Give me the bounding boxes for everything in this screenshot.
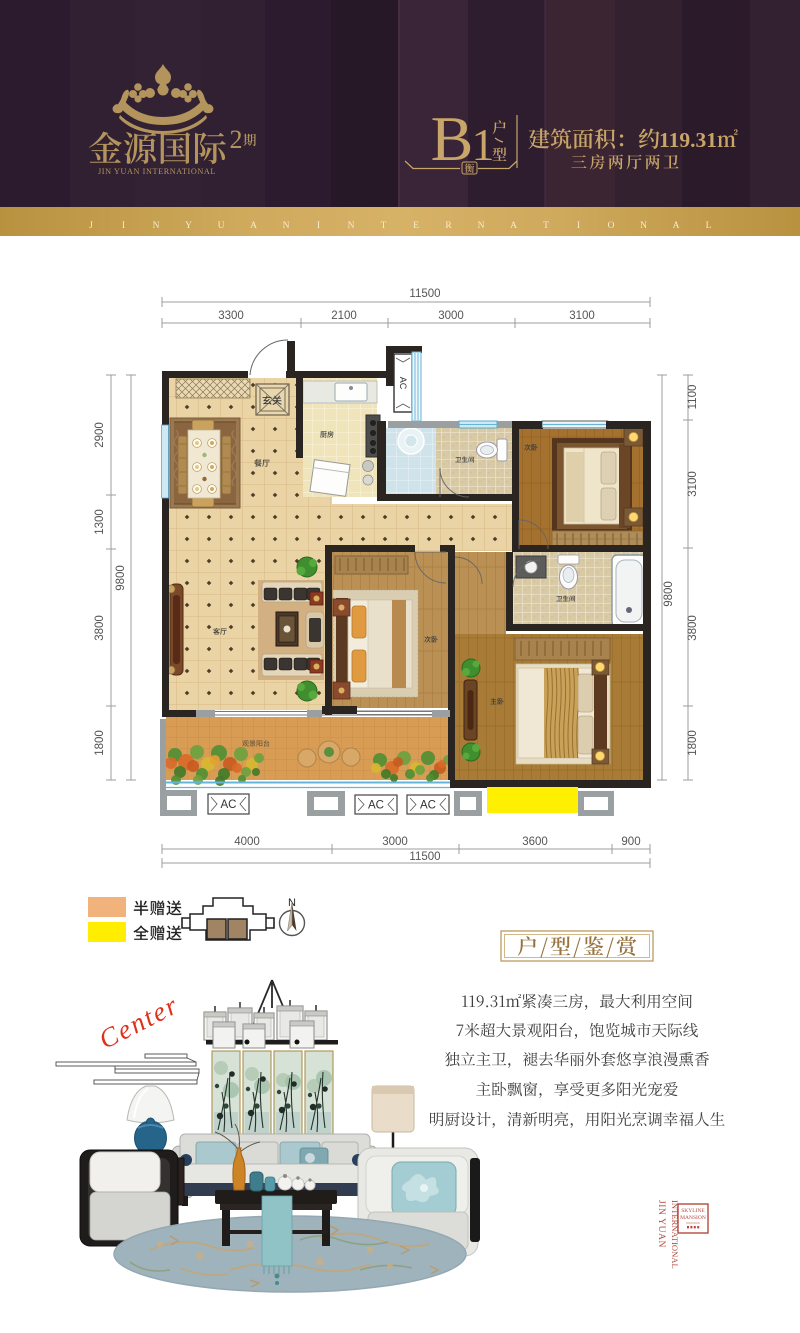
svg-text:T: T <box>381 221 387 231</box>
svg-text:3600: 3600 <box>522 836 548 848</box>
svg-text:3300: 3300 <box>218 310 244 322</box>
svg-text:1100: 1100 <box>687 385 699 410</box>
svg-text:4000: 4000 <box>234 836 260 848</box>
svg-text:9800: 9800 <box>663 581 675 607</box>
svg-text:I: I <box>577 221 580 231</box>
svg-text:AC: AC <box>221 799 237 811</box>
svg-text:119.31: 119.31 <box>659 128 717 152</box>
svg-text:Center: Center <box>94 989 184 1055</box>
svg-text:I: I <box>317 221 320 231</box>
svg-text:N: N <box>283 221 290 231</box>
svg-text:N: N <box>153 221 160 231</box>
svg-text:O: O <box>608 221 615 231</box>
svg-text:SKYLINE: SKYLINE <box>681 1208 705 1214</box>
svg-text:R: R <box>445 221 452 231</box>
svg-text:AC: AC <box>398 377 408 390</box>
svg-text:3100: 3100 <box>569 310 595 322</box>
svg-text:MANSION: MANSION <box>680 1215 706 1221</box>
svg-text:AC: AC <box>420 800 436 812</box>
svg-text:U: U <box>218 221 225 231</box>
svg-text:3000: 3000 <box>438 310 464 322</box>
svg-text:9800: 9800 <box>115 565 127 591</box>
svg-text:JIN YUAN: JIN YUAN <box>656 1200 666 1248</box>
svg-text:L: L <box>706 221 712 231</box>
svg-text:I: I <box>122 221 125 231</box>
svg-text:N: N <box>348 221 355 231</box>
svg-text:T: T <box>543 221 549 231</box>
svg-text:N: N <box>640 221 647 231</box>
svg-text:11500: 11500 <box>409 851 440 863</box>
svg-text:E: E <box>413 221 419 231</box>
svg-text:A: A <box>510 221 517 231</box>
svg-text:1800: 1800 <box>94 730 106 756</box>
svg-text:2100: 2100 <box>331 310 357 322</box>
svg-text:2: 2 <box>230 125 243 154</box>
svg-text:J: J <box>89 221 93 231</box>
svg-text:3100: 3100 <box>687 471 699 497</box>
svg-text:3000: 3000 <box>382 836 408 848</box>
svg-text:A: A <box>250 221 257 231</box>
svg-text:3800: 3800 <box>687 615 699 641</box>
svg-text:3800: 3800 <box>94 615 106 641</box>
svg-text:N: N <box>478 221 485 231</box>
svg-text:JIN YUAN INTERNATIONAL: JIN YUAN INTERNATIONAL <box>98 167 216 176</box>
svg-text:900: 900 <box>621 836 640 848</box>
svg-text:11500: 11500 <box>409 288 440 300</box>
svg-text:AC: AC <box>368 800 384 812</box>
svg-text:1300: 1300 <box>94 509 106 535</box>
svg-text:B: B <box>431 103 474 174</box>
svg-text:Y: Y <box>185 221 192 231</box>
svg-text:1800: 1800 <box>687 730 699 756</box>
svg-text:A: A <box>673 221 680 231</box>
svg-text:2900: 2900 <box>94 422 106 448</box>
